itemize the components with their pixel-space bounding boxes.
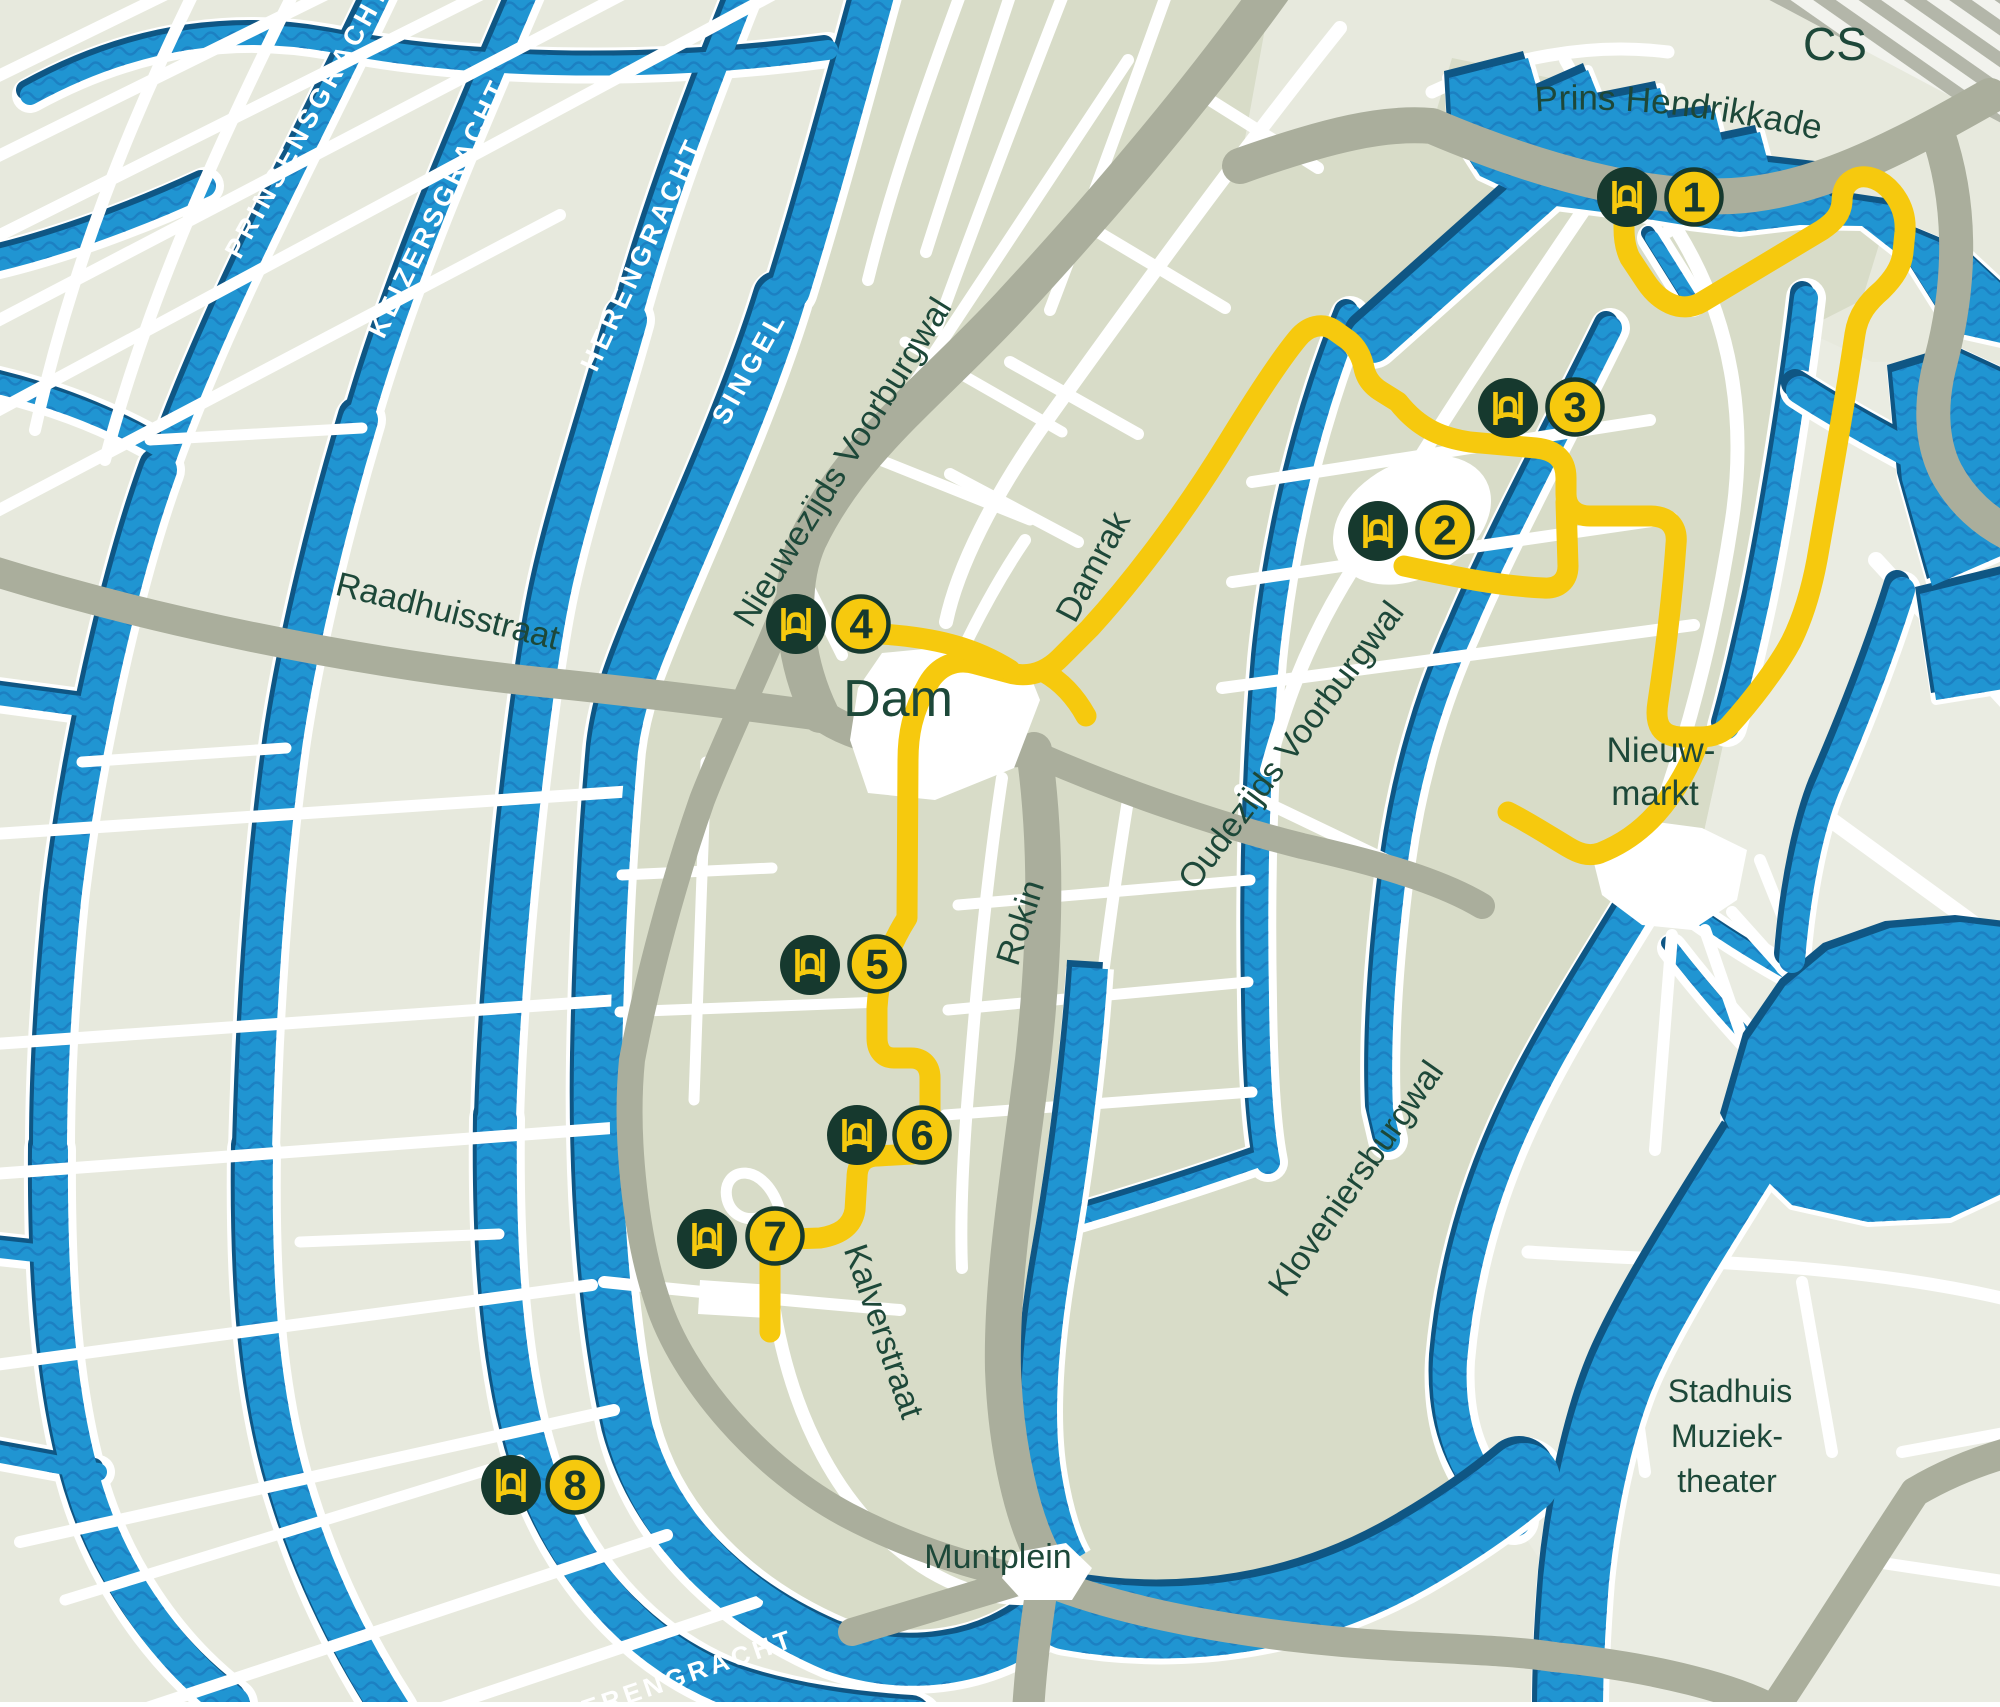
svg-text:6: 6: [910, 1112, 933, 1159]
svg-text:markt: markt: [1611, 774, 1699, 813]
svg-text:Nieuw-: Nieuw-: [1607, 731, 1716, 770]
svg-text:Dam: Dam: [843, 670, 953, 728]
svg-text:3: 3: [1563, 384, 1586, 431]
svg-text:4: 4: [849, 601, 873, 648]
svg-text:2: 2: [1433, 507, 1456, 554]
svg-text:7: 7: [763, 1213, 786, 1260]
svg-text:Muntplein: Muntplein: [924, 1538, 1071, 1576]
svg-text:5: 5: [865, 941, 888, 988]
svg-text:Stadhuis: Stadhuis: [1668, 1373, 1793, 1409]
svg-text:Muziek-: Muziek-: [1671, 1418, 1783, 1454]
svg-text:CS: CS: [1803, 18, 1867, 70]
svg-text:theater: theater: [1677, 1463, 1777, 1499]
svg-text:8: 8: [563, 1462, 586, 1509]
svg-text:1: 1: [1682, 174, 1705, 221]
